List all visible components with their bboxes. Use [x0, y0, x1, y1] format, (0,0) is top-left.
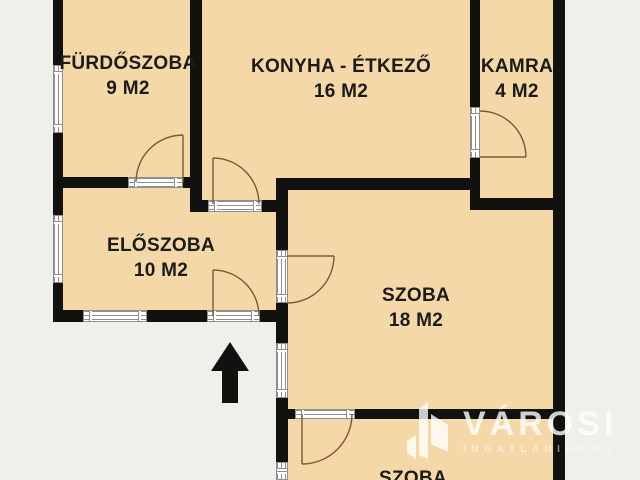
room-label-furdoszoba: FÜRDŐSZOBA 9 M2: [59, 51, 196, 101]
entrance-arrow-icon: [211, 342, 249, 403]
room-area: 16 M2: [251, 79, 431, 104]
room-label-konyha: KONYHA - ÉTKEZŐ 16 M2: [251, 54, 431, 104]
room-area: 18 M2: [382, 308, 450, 333]
watermark: VÁROSI INGATLANIRODA: [402, 399, 617, 461]
door-swing-icon: [287, 256, 334, 303]
room-label-szoba-also: SZOBA: [379, 466, 447, 480]
room-label-szoba-18: SZOBA 18 M2: [382, 283, 450, 333]
door-swing-icon: [480, 111, 526, 157]
watermark-text: VÁROSI INGATLANIRODA: [463, 399, 617, 455]
room-name: ELŐSZOBA: [107, 233, 215, 258]
room-area: 4 M2: [481, 79, 553, 104]
watermark-subtitle: INGATLANIRODA: [463, 444, 617, 455]
room-area: 9 M2: [59, 76, 196, 101]
brand-logo-icon: [402, 399, 452, 461]
door-swing-icon: [136, 135, 183, 182]
room-name: KONYHA - ÉTKEZŐ: [251, 54, 431, 79]
room-label-kamra: KAMRA 4 M2: [481, 54, 553, 104]
room-name: SZOBA: [382, 283, 450, 308]
room-name: FÜRDŐSZOBA: [59, 51, 196, 76]
room-label-eloszoba: ELŐSZOBA 10 M2: [107, 233, 215, 283]
door-swing-icon: [213, 158, 259, 204]
floorplan-canvas: FÜRDŐSZOBA 9 M2 KONYHA - ÉTKEZŐ 16 M2 KA…: [0, 0, 640, 480]
door-swing-icon: [213, 270, 259, 316]
door-swing-icon: [302, 414, 352, 464]
room-name: KAMRA: [481, 54, 553, 79]
watermark-brand: VÁROSI: [463, 407, 617, 441]
room-name: SZOBA: [379, 466, 447, 480]
room-area: 10 M2: [107, 258, 215, 283]
